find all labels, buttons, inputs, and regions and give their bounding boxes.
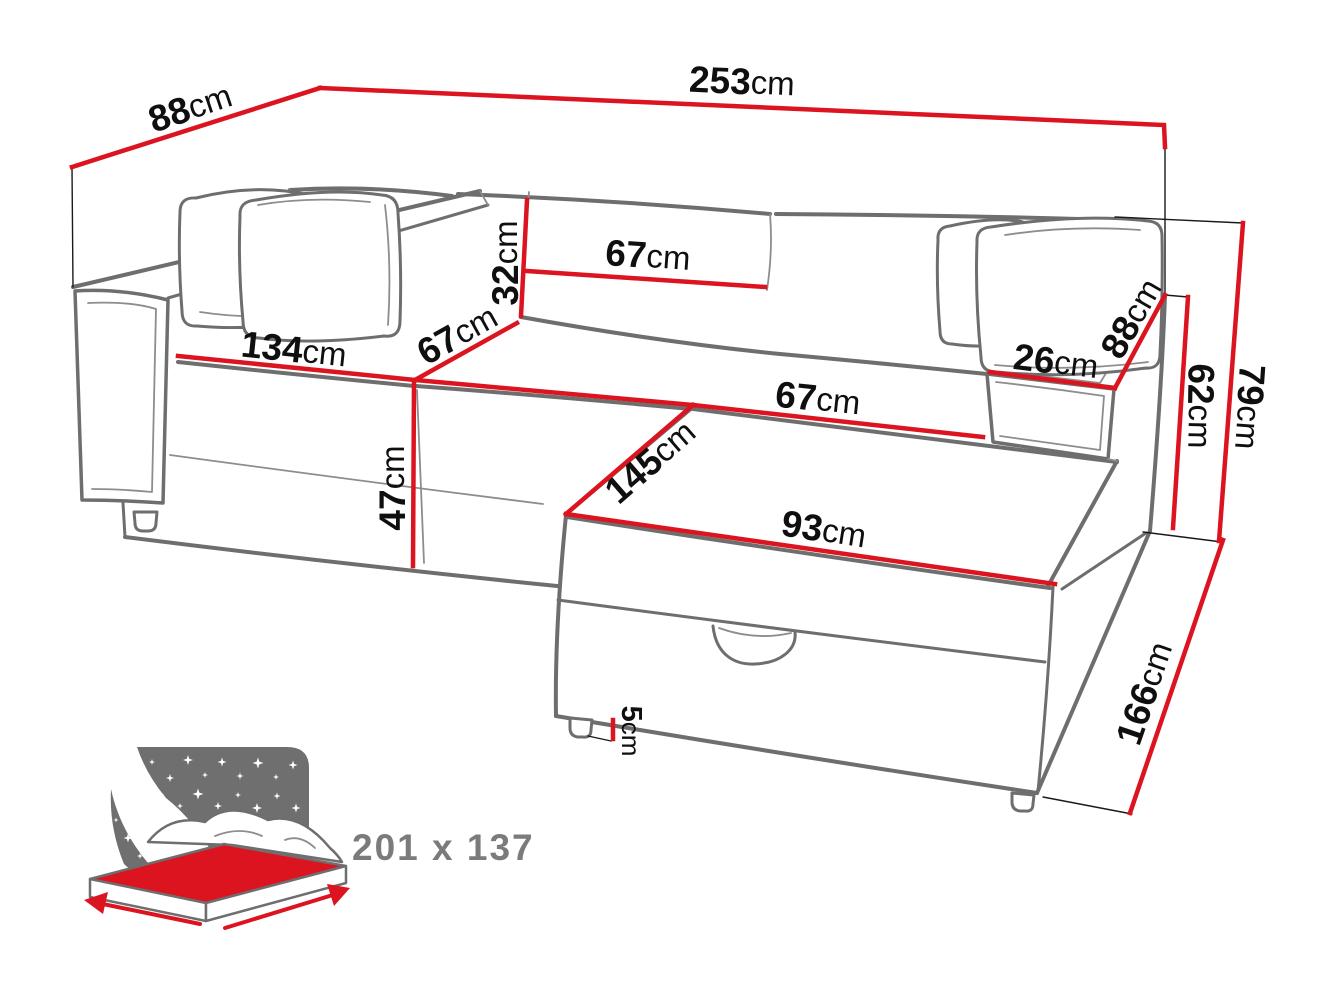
sofa-leg [134,512,157,531]
dimension-label-back-width: 253cm [688,58,795,104]
star-icon [143,833,148,838]
pillow [239,192,400,341]
diagram-canvas: 88cm 253cm 32cm 67cm 134cm 67cm 47cm 67c… [0,0,1335,1001]
backrest-middle-top [458,194,770,214]
sofa-bed-icon: 201 x 137 [84,747,535,928]
sofa-dimension-diagram: 88cm 253cm 32cm 67cm 134cm 67cm 47cm 67c… [0,0,1335,1001]
base-bottom-edge [125,537,557,586]
backrest-middle-right-edge [767,214,771,290]
chaise-front-left-edge [556,515,566,716]
chaise-right-top-edge [1048,461,1117,586]
storage-handle [713,626,795,664]
sofa-leg [570,718,592,737]
dimension-label-seat-depth: 67cm [410,295,504,372]
front-face-right-edge [417,390,424,563]
seat-back-junction [521,317,987,374]
right-bottom-edge [1037,531,1150,793]
dimension-label-armrest-height: 62cm [1180,363,1222,449]
pillows-left [179,190,400,341]
dimension-label-total-height: 79cm [1227,363,1274,451]
base-left-edge [123,503,125,537]
dimension-label-chaise-length: 145cm [597,411,704,511]
dimension-line-seat-height [413,381,414,566]
dimension-line-seat-front-connector [415,380,693,405]
storage-flap-line [558,600,1045,662]
sofa-leg [1012,793,1034,811]
dimension-label-seat-height: 47cm [372,445,413,530]
front-face-crease [170,455,543,504]
seat-front-edge-mid [416,386,691,409]
dimension-label-backrest-cushion-width: 67cm [604,232,692,279]
sleeping-area-label: 201 x 137 [352,827,535,868]
dimension-label-leg-height: 5cm [615,706,647,757]
dimension-label-backrest-height: 32cm [485,220,526,305]
star-icon [117,797,124,804]
